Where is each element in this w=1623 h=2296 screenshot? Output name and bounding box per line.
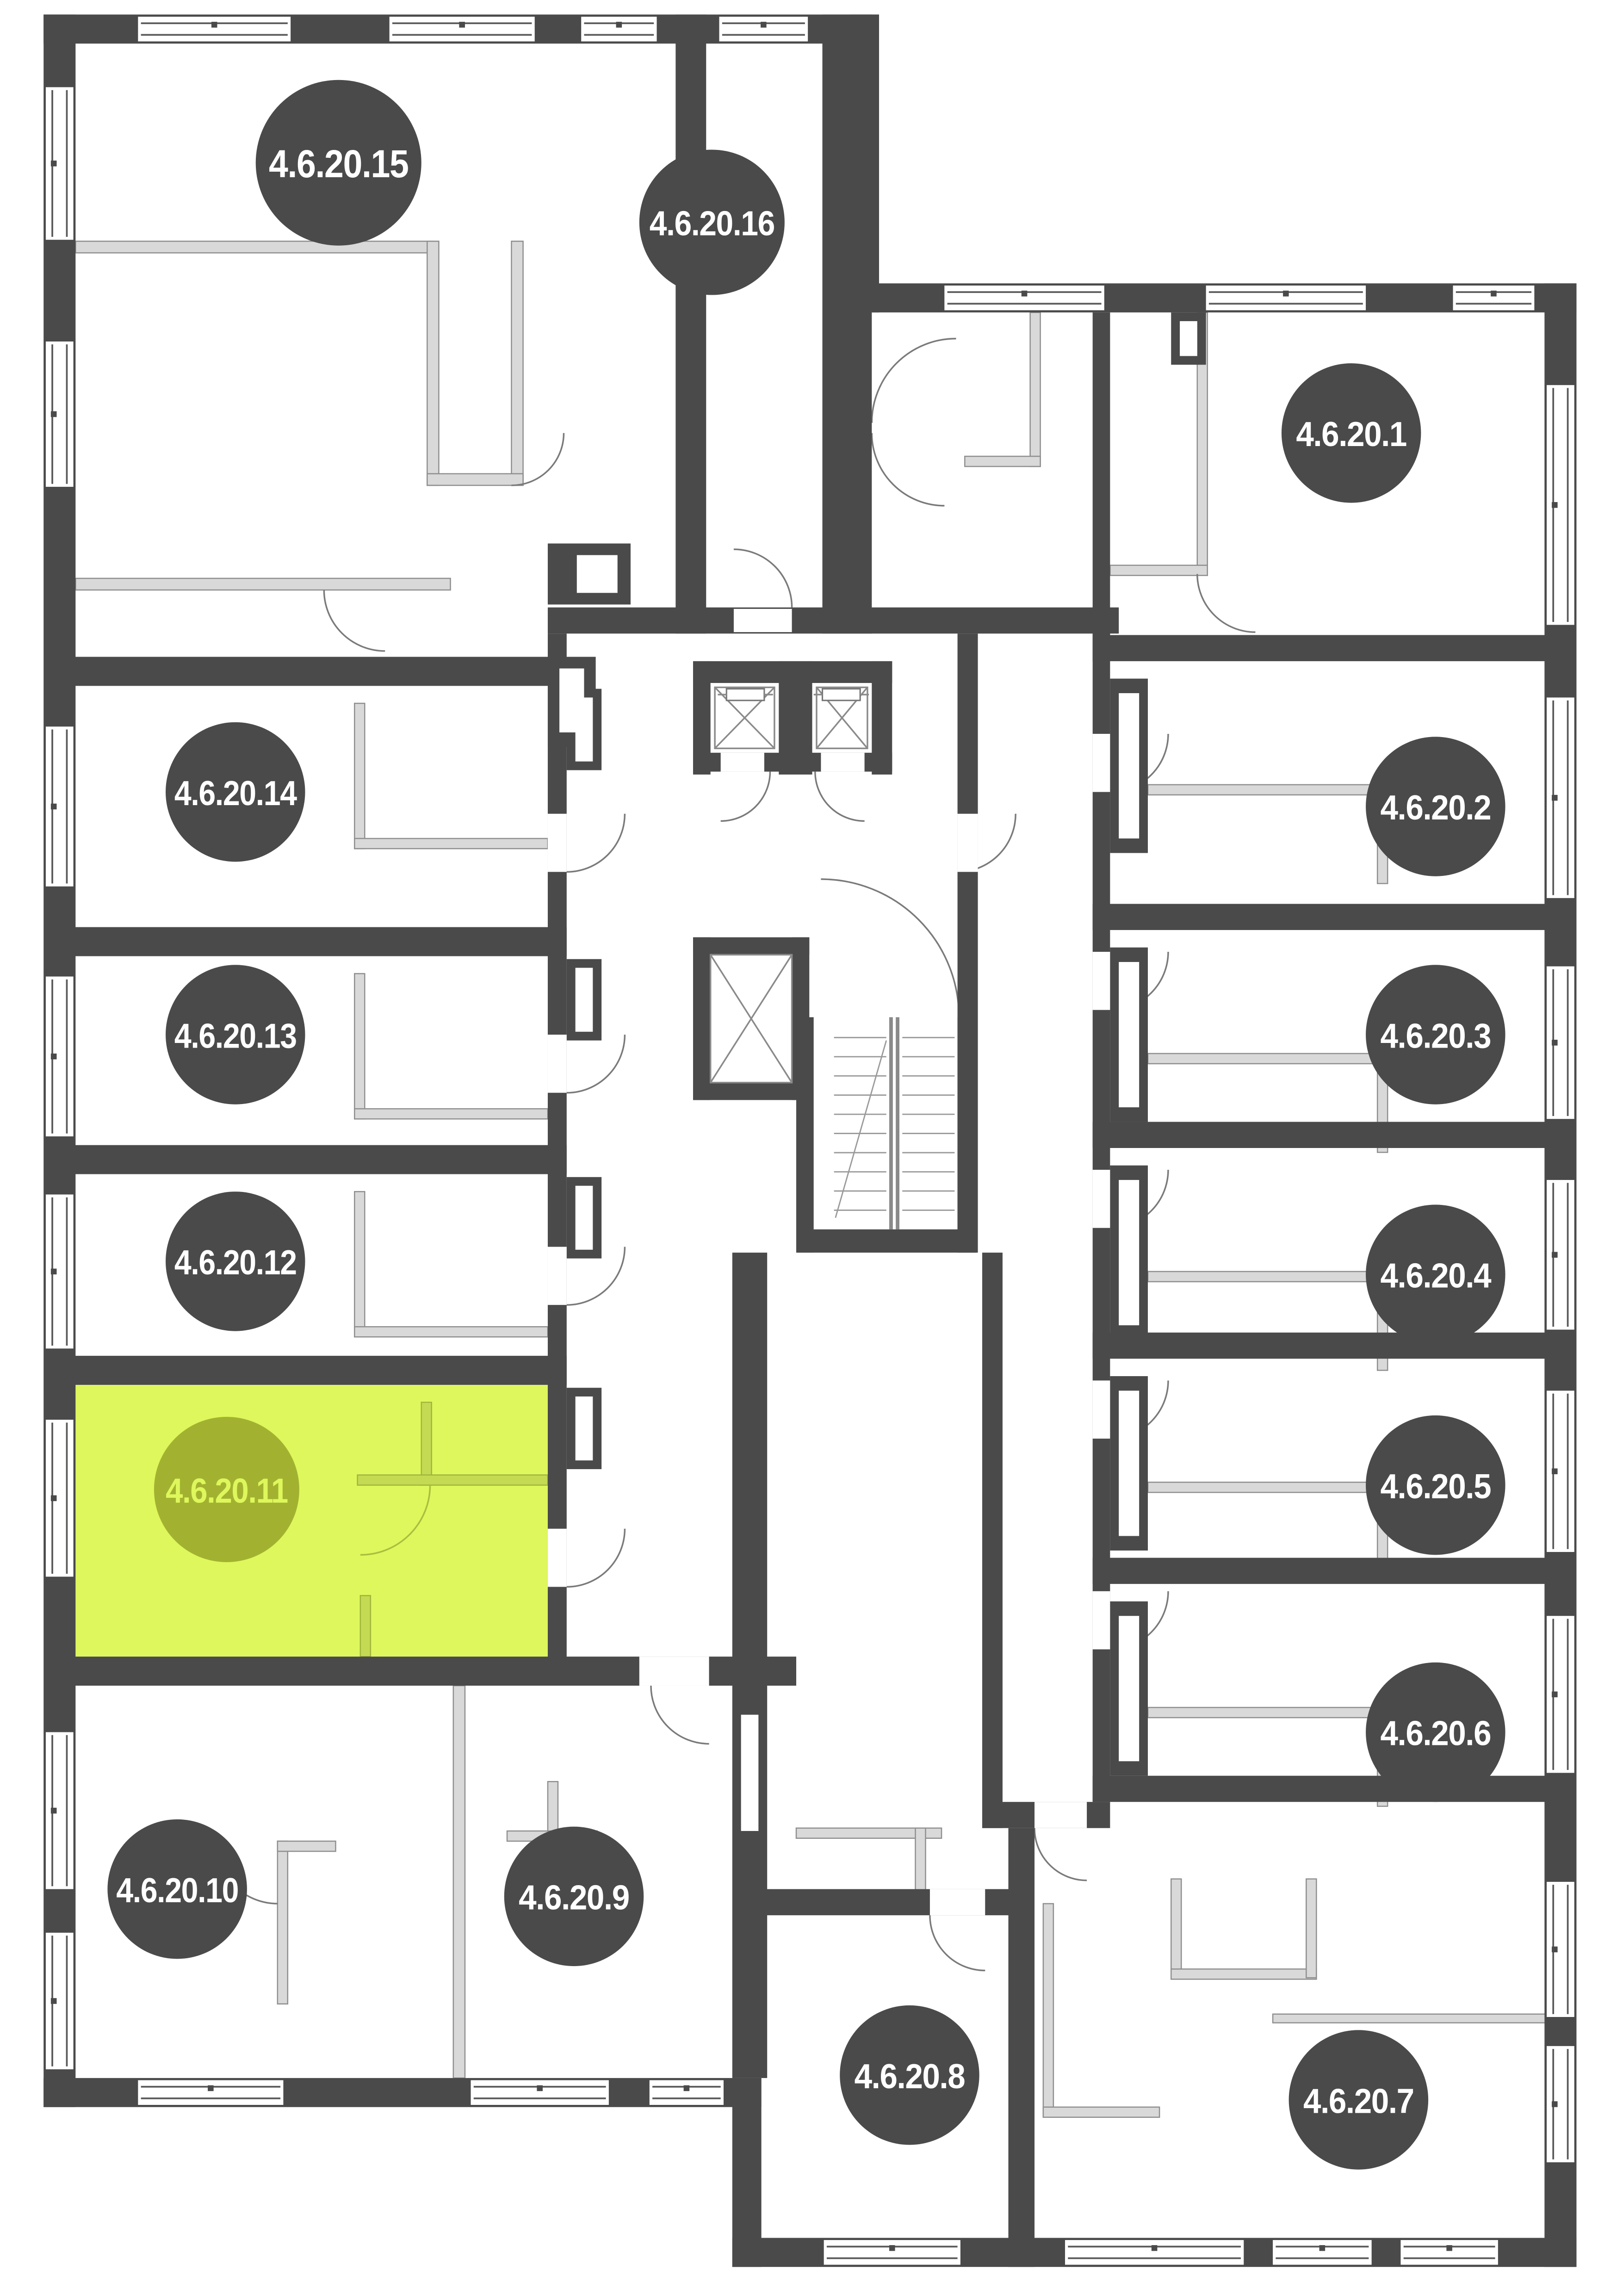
window xyxy=(581,17,657,41)
unit-badge-4.6.20.11-selected[interactable]: 4.6.20.11 xyxy=(154,1417,299,1562)
wall-opening xyxy=(548,1529,567,1587)
unit-badge-label: 4.6.20.13 xyxy=(174,1016,297,1055)
wall-segment xyxy=(693,1083,809,1100)
unit-badge-4.6.20.14[interactable]: 4.6.20.14 xyxy=(166,722,305,862)
window xyxy=(1547,1882,1574,2017)
window xyxy=(1547,966,1574,1119)
window xyxy=(1547,1616,1574,1773)
highlighted-unit-room[interactable] xyxy=(75,1385,548,1657)
window xyxy=(1152,2245,1158,2251)
partition xyxy=(965,456,1040,466)
wall-segment xyxy=(1093,904,1548,930)
window xyxy=(138,2080,283,2105)
wall-opening xyxy=(548,1035,567,1093)
wall-opening xyxy=(930,1889,985,1916)
window xyxy=(1065,2240,1244,2265)
window xyxy=(1547,1180,1574,1329)
partition xyxy=(916,1828,926,1892)
wall-opening xyxy=(1093,1170,1110,1228)
window xyxy=(46,1933,74,2069)
window xyxy=(1206,285,1366,310)
window xyxy=(1453,285,1535,310)
wall-opening xyxy=(1093,1380,1110,1439)
floor-plan-page: 4.6.20.1 4.6.20.2 4.6.20.3 4.6.20.4 4.6.… xyxy=(0,0,1623,2296)
window xyxy=(46,1732,74,1889)
window xyxy=(1552,1252,1558,1258)
unit-badge-4.6.20.3[interactable]: 4.6.20.3 xyxy=(1366,965,1505,1104)
partition xyxy=(1043,2107,1159,2117)
window xyxy=(1552,1040,1558,1046)
unit-badge-4.6.20.1[interactable]: 4.6.20.1 xyxy=(1282,363,1421,503)
wall-segment xyxy=(823,14,872,633)
partition xyxy=(75,578,450,590)
unit-badge-4.6.20.4[interactable]: 4.6.20.4 xyxy=(1366,1204,1505,1344)
partition xyxy=(1171,1879,1181,1978)
window xyxy=(1547,697,1574,898)
window xyxy=(51,1269,57,1275)
window xyxy=(1547,1390,1574,1552)
wall-opening xyxy=(577,555,618,593)
window xyxy=(471,2080,609,2105)
unit-badge-4.6.20.2[interactable]: 4.6.20.2 xyxy=(1366,737,1505,876)
partition xyxy=(511,241,523,485)
partition xyxy=(1306,1879,1316,1978)
partition xyxy=(453,1686,465,2078)
unit-badge-4.6.20.10[interactable]: 4.6.20.10 xyxy=(107,1819,247,1959)
wall-segment xyxy=(1093,1558,1548,1584)
window xyxy=(1022,291,1028,297)
unit-badge-label: 4.6.20.11 xyxy=(166,1471,288,1510)
window xyxy=(761,22,767,28)
wall-opening xyxy=(821,753,864,772)
highlight-partition xyxy=(360,1595,371,1657)
partition xyxy=(75,241,433,253)
unit-badge-label: 4.6.20.4 xyxy=(1381,1256,1492,1295)
wall-segment xyxy=(1009,1828,1035,2267)
window xyxy=(1547,385,1574,625)
wall-segment xyxy=(47,927,567,956)
stair-part xyxy=(889,1017,893,1229)
unit-badge-label: 4.6.20.8 xyxy=(855,2057,965,2096)
highlight-partition xyxy=(421,1402,432,1485)
wall-opening xyxy=(1093,952,1110,1010)
window xyxy=(51,411,57,417)
wall-opening xyxy=(734,609,792,632)
partition xyxy=(427,241,439,485)
window xyxy=(1400,2240,1498,2265)
window xyxy=(824,2240,960,2265)
unit-badge-4.6.20.15[interactable]: 4.6.20.15 xyxy=(256,80,421,246)
wall-opening xyxy=(1119,1390,1139,1536)
window xyxy=(1491,291,1497,297)
window xyxy=(616,22,622,28)
unit-badge-label: 4.6.20.1 xyxy=(1296,415,1406,453)
partition xyxy=(1273,2014,1548,2023)
window xyxy=(51,804,57,810)
partition xyxy=(354,1109,548,1119)
unit-badge-4.6.20.7[interactable]: 4.6.20.7 xyxy=(1289,2030,1428,2169)
partition xyxy=(1110,565,1207,576)
wall-opening xyxy=(958,814,978,872)
partition xyxy=(1043,1904,1053,2116)
floor-plan: 4.6.20.1 4.6.20.2 4.6.20.3 4.6.20.4 4.6.… xyxy=(0,0,1623,2296)
unit-badge-label: 4.6.20.14 xyxy=(174,774,297,813)
partition xyxy=(278,1841,288,2004)
unit-badge-4.6.20.13[interactable]: 4.6.20.13 xyxy=(166,965,305,1104)
window xyxy=(1552,502,1558,508)
window xyxy=(46,976,74,1136)
window xyxy=(650,2080,724,2105)
window xyxy=(1446,2245,1452,2251)
window xyxy=(138,17,291,41)
wall-opening xyxy=(1093,734,1110,792)
unit-badge-label: 4.6.20.15 xyxy=(269,142,408,186)
partition xyxy=(354,974,365,1119)
wall-opening xyxy=(721,753,764,772)
window xyxy=(1273,2240,1372,2265)
window xyxy=(46,87,74,240)
window xyxy=(1319,2245,1326,2251)
wall-opening xyxy=(1035,1802,1087,1828)
wall-segment xyxy=(47,1145,567,1174)
window xyxy=(46,726,74,886)
unit-badge-label: 4.6.20.3 xyxy=(1381,1016,1491,1055)
unit-badge-label: 4.6.20.2 xyxy=(1381,788,1491,827)
window xyxy=(1552,795,1558,801)
window xyxy=(1552,1692,1558,1698)
wall-opening xyxy=(1119,693,1139,838)
partition xyxy=(278,1841,336,1851)
wall-segment xyxy=(732,1253,767,2078)
window xyxy=(1283,291,1289,297)
window xyxy=(1547,2046,1574,2162)
wall-segment xyxy=(675,14,706,633)
wall-opening xyxy=(576,1396,593,1460)
window xyxy=(208,2085,214,2091)
unit-badge-label: 4.6.20.16 xyxy=(650,204,774,243)
wall-opening xyxy=(1119,1180,1139,1325)
unit-badge-4.6.20.5[interactable]: 4.6.20.5 xyxy=(1366,1415,1505,1555)
window xyxy=(46,1420,74,1576)
window xyxy=(1552,1947,1558,1953)
unit-badge-label: 4.6.20.6 xyxy=(1381,1714,1491,1753)
partition xyxy=(354,1191,365,1337)
partition xyxy=(1030,312,1041,466)
wall-opening xyxy=(741,1715,759,1831)
wall-opening xyxy=(576,968,593,1032)
wall-segment xyxy=(796,1017,814,1253)
window xyxy=(537,2085,543,2091)
window xyxy=(211,22,217,28)
window xyxy=(51,161,57,167)
window xyxy=(459,22,465,28)
window xyxy=(51,1998,57,2004)
wall-segment xyxy=(47,1356,567,1385)
partition xyxy=(354,838,548,849)
wall-opening xyxy=(639,1657,709,1686)
wall-opening xyxy=(576,1186,593,1250)
wall-segment xyxy=(548,608,1119,634)
partition xyxy=(427,474,523,485)
wall-segment xyxy=(1093,1333,1548,1359)
wall-opening xyxy=(576,697,593,761)
wall-segment xyxy=(47,657,567,686)
wall-opening xyxy=(548,1247,567,1305)
wall-opening xyxy=(1119,1616,1139,1761)
window xyxy=(51,1496,57,1502)
wall-opening xyxy=(1093,1591,1110,1650)
elevator-icon xyxy=(726,689,764,701)
wall-segment xyxy=(982,1253,1003,1828)
unit-badge-4.6.20.16[interactable]: 4.6.20.16 xyxy=(639,149,785,295)
window xyxy=(51,1808,57,1814)
wall-segment xyxy=(958,633,978,1253)
highlight-partition xyxy=(358,1475,548,1485)
window xyxy=(51,1054,57,1060)
wall-opening xyxy=(1180,321,1197,356)
window xyxy=(1552,1468,1558,1474)
wall-opening xyxy=(1119,962,1139,1107)
wall-segment xyxy=(693,937,711,1100)
window xyxy=(46,1194,74,1348)
unit-badge-label: 4.6.20.7 xyxy=(1303,2081,1414,2120)
elevator-icon xyxy=(823,689,861,701)
window xyxy=(684,2085,690,2091)
unit-badge-label: 4.6.20.5 xyxy=(1381,1467,1491,1506)
unit-badge-4.6.20.6[interactable]: 4.6.20.6 xyxy=(1366,1663,1505,1802)
stair-part xyxy=(896,1017,899,1229)
unit-badge-label: 4.6.20.9 xyxy=(519,1878,629,1917)
unit-badge-4.6.20.9[interactable]: 4.6.20.9 xyxy=(504,1827,644,1966)
window xyxy=(1552,2101,1558,2107)
unit-badge-4.6.20.8[interactable]: 4.6.20.8 xyxy=(840,2005,979,2145)
window xyxy=(719,17,808,41)
partition xyxy=(354,703,365,849)
window xyxy=(944,285,1104,310)
partition xyxy=(1171,1969,1316,1979)
window xyxy=(46,341,74,487)
wall-segment xyxy=(1093,312,1110,635)
wall-segment xyxy=(1093,1122,1548,1148)
unit-badge-label: 4.6.20.10 xyxy=(116,1871,238,1910)
wall-segment xyxy=(1093,635,1548,661)
window xyxy=(390,17,535,41)
unit-badge-label: 4.6.20.12 xyxy=(174,1243,297,1282)
window xyxy=(889,2245,895,2251)
wall-opening xyxy=(548,814,567,872)
wall-segment xyxy=(796,1229,976,1253)
partition xyxy=(354,1327,548,1337)
unit-badge-4.6.20.12[interactable]: 4.6.20.12 xyxy=(166,1191,305,1331)
